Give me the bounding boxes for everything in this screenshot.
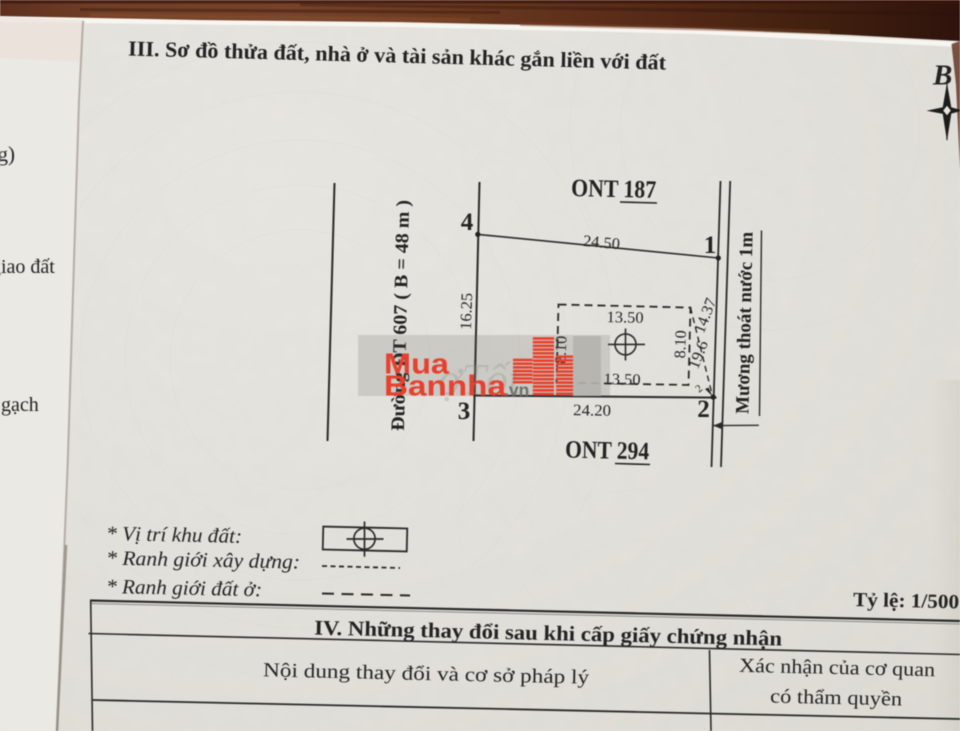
svg-text:B: B xyxy=(932,60,952,92)
svg-text:giao đất: giao đất xyxy=(0,256,55,278)
svg-text:8.10: 8.10 xyxy=(672,330,690,359)
svg-text:Bannha: Bannha xyxy=(384,371,507,403)
svg-text:.vn: .vn xyxy=(504,380,529,400)
svg-text:gạch: gạch xyxy=(1,394,39,416)
svg-text:* Ranh giới xây dựng:: * Ranh giới xây dựng: xyxy=(106,548,300,574)
svg-text:4: 4 xyxy=(461,209,474,236)
svg-text:24.50: 24.50 xyxy=(582,233,620,253)
svg-text:24.20: 24.20 xyxy=(573,402,611,420)
svg-text:2: 2 xyxy=(697,396,710,423)
svg-text:1: 1 xyxy=(704,232,717,259)
svg-text:* Vị trí khu đất:: * Vị trí khu đất: xyxy=(106,523,242,548)
svg-text:Xác nhận của cơ quan: Xác nhận của cơ quan xyxy=(739,655,935,681)
svg-text:có thẩm quyền: có thẩm quyền xyxy=(770,686,902,711)
svg-text:13.50: 13.50 xyxy=(606,309,643,327)
svg-text:ONT 294: ONT 294 xyxy=(565,437,650,466)
svg-text:Tỷ lệ: 1/500: Tỷ lệ: 1/500 xyxy=(853,589,959,613)
svg-text:16.25: 16.25 xyxy=(458,293,476,331)
svg-text:Mương thoát nước 1m: Mương thoát nước 1m xyxy=(732,232,757,415)
svg-text:ng): ng) xyxy=(0,142,15,166)
svg-text:* Ranh giới đất ở:: * Ranh giới đất ở: xyxy=(106,576,262,601)
svg-text:ONT 187: ONT 187 xyxy=(571,175,657,204)
